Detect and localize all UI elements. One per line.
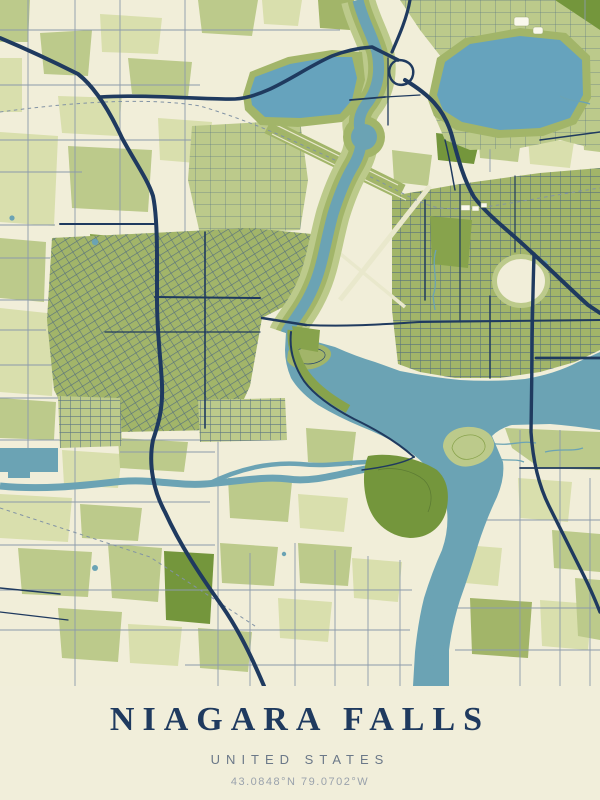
map-poster: NIAGARA FALLS UNITED STATES 43.0848°N 79… [0,0,600,800]
poster-title: NIAGARA FALLS [110,701,490,739]
poster-footer: NIAGARA FALLS UNITED STATES 43.0848°N 79… [0,686,600,800]
whirlpool [351,124,377,150]
niagara-map-svg [0,0,600,686]
map-canvas [0,0,600,686]
golf-course [497,259,545,303]
poster-subtitle: UNITED STATES [211,752,390,767]
poster-coordinates: 43.0848°N 79.0702°W [231,776,369,788]
